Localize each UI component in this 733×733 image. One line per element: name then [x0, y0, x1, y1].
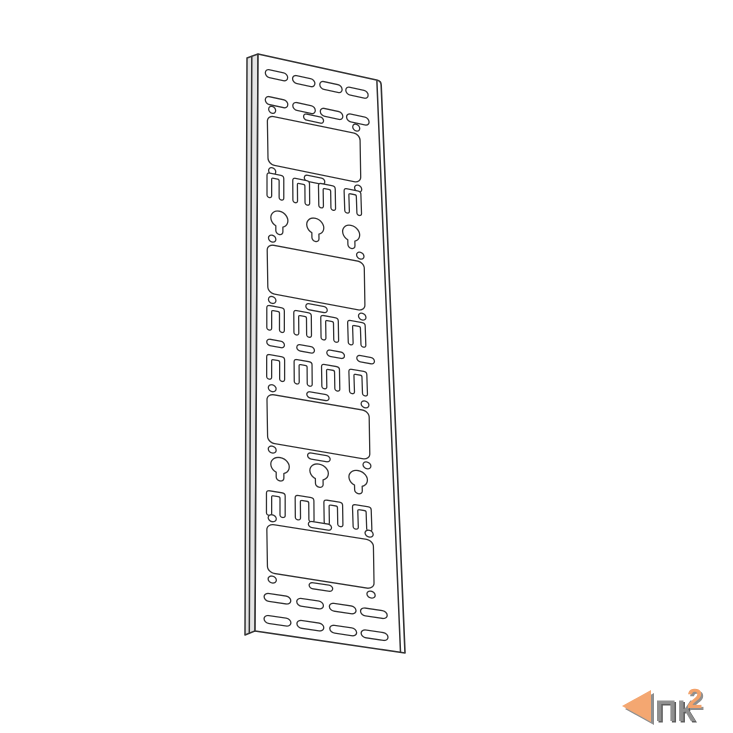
logo: ПК 2 [616, 682, 728, 730]
mounting-hole [268, 576, 276, 584]
mounting-hole [268, 514, 276, 522]
cable-organizer-technical-drawing [0, 0, 733, 733]
logo-triangle-icon [622, 690, 651, 722]
logo-superscript: 2 [687, 685, 703, 713]
